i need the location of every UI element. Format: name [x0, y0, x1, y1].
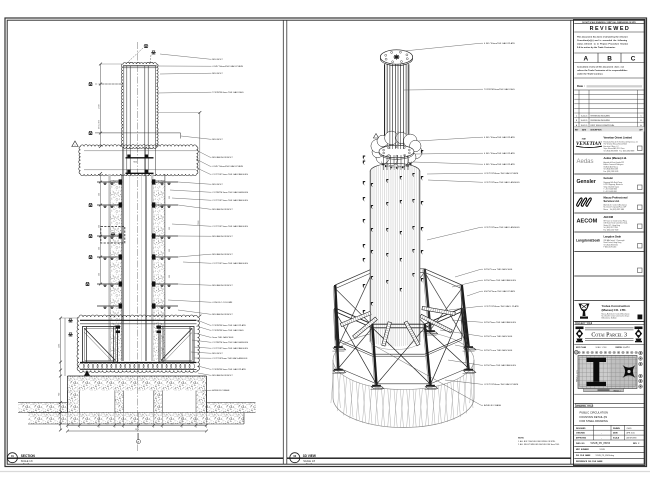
svg-text:Langdon&Seah: Langdon&Seah	[576, 239, 600, 243]
svg-text:AECOM: AECOM	[577, 219, 598, 225]
svg-text:(Macau) CO. LTD.: (Macau) CO. LTD.	[602, 308, 627, 312]
svg-text:C: C	[631, 55, 636, 62]
svg-text:COT/TOP50mm THK GALV.PLATE: COT/TOP50mm THK GALV.PLATE	[484, 172, 519, 175]
svg-text:4 345 *50mmTHK GALV.PLATE: 4 345 *50mmTHK GALV.PLATE	[484, 136, 515, 139]
svg-text:COT/TOP5mm THK GALV. ANGLES: COT/TOP5mm THK GALV. ANGLES	[484, 181, 520, 184]
svg-text:VENETIAN: VENETIAN	[576, 142, 602, 147]
svg-text:4 345 *50mmTHK GALV.PLATE: 4 345 *50mmTHK GALV.PLATE	[484, 152, 515, 155]
svg-text:Gensler: Gensler	[604, 176, 614, 180]
svg-text:4 345 *50mmTHK GALV.PLATE: 4 345 *50mmTHK GALV.PLATE	[212, 165, 243, 168]
svg-text:APPROVED: APPROVED	[576, 437, 587, 440]
svg-text:450: 450	[130, 423, 133, 425]
svg-text:KEY PLAN: KEY PLAN	[576, 346, 587, 349]
svg-text:PROJECT TITLE: PROJECT TITLE	[576, 323, 593, 325]
svg-text:M16 BOLT: M16 BOLT	[212, 59, 223, 61]
svg-text:REVISED AS INDICATED: REVISED AS INDICATED	[591, 119, 611, 122]
svg-text:Date :: Date :	[577, 84, 585, 88]
svg-text:SCALE: SCALE	[613, 437, 620, 440]
svg-text:5152B: 5152B	[600, 449, 606, 451]
svg-text:5152B_PD_85456: 5152B_PD_85456	[591, 442, 611, 445]
svg-text:M16 ANCHOR BOLT: M16 ANCHOR BOLT	[212, 284, 233, 287]
svg-text:M16 ANCHOR BOLT: M16 ANCHOR BOLT	[212, 253, 233, 256]
svg-text:PARCEL 1, LOT 2: PARCEL 1, LOT 2	[616, 346, 630, 349]
svg-text:TOP/BTM 5mm THK GALV.PLATE: TOP/BTM 5mm THK GALV.PLATE	[212, 324, 246, 327]
svg-text:COT/TOP 5mm THK GALV.ANGLES: COT/TOP 5mm THK GALV.ANGLES	[212, 173, 248, 176]
svg-text:5.4 for action by the Trade Co: 5.4 for action by the Trade Contractor.	[577, 46, 616, 49]
svg-text:TOP/BTM 5mm THK GALV.PLATE: TOP/BTM 5mm THK GALV.PLATE	[212, 368, 246, 371]
svg-text:COT/TOP50mm THK GALV.PLATE: COT/TOP50mm THK GALV.PLATE	[484, 383, 519, 386]
svg-text:A2580 R.C.BASE: A2580 R.C.BASE	[212, 389, 230, 392]
svg-text:relieve the Trade Contractor o: relieve the Trade Contractor of its resp…	[577, 69, 628, 72]
svg-text:Consultant review of this docu: Consultant review of this document does …	[577, 66, 624, 69]
svg-text:AECOM: AECOM	[604, 215, 613, 219]
svg-text:Aedas (Macau) Ltd.: Aedas (Macau) Ltd.	[604, 156, 628, 160]
svg-text:50*50*5mm THK GALV.ANGLES: 50*50*5mm THK GALV.ANGLES	[484, 279, 516, 282]
svg-text:15-04-15: 15-04-15	[581, 116, 588, 118]
svg-text:50*50*5 mm THK GALV.SHS: 50*50*5 mm THK GALV.SHS	[484, 349, 513, 352]
svg-text:M16 ANCHOR BOLT: M16 ANCHOR BOLT	[212, 208, 233, 211]
svg-text:DO NOT SCALE DRAWINGS. VERIFY: DO NOT SCALE DRAWINGS. VERIFY ALL DIMENS…	[582, 21, 636, 24]
svg-text:Langdon Seah: Langdon Seah	[604, 235, 622, 239]
svg-text:Tel: (852) 2830 3500: Tel: (852) 2830 3500	[604, 244, 618, 246]
svg-text:COT/BTM 5mm THK GALV.ANGLES: COT/BTM 5mm THK GALV.ANGLES	[212, 191, 248, 194]
svg-text:M16 BOLT: M16 BOLT	[212, 139, 223, 141]
svg-text:Tokyo 106-0032 Japan: Tokyo 106-0032 Japan	[604, 186, 620, 188]
svg-text:DATE: DATE	[613, 432, 619, 435]
svg-text:50*50*5mm THK GALV.ANGLES: 50*50*5mm THK GALV.ANGLES	[484, 321, 516, 324]
svg-text:A: A	[583, 55, 588, 62]
svg-text:1595: 1595	[59, 344, 61, 348]
svg-text:Consultant(s)(s) and is acc: Consultant(s)(s) and is accorded the fol…	[577, 39, 628, 42]
svg-text:Services Ltd.: Services Ltd.	[604, 199, 620, 203]
svg-text:50*50*5mm THK GALV.ANGLES: 50*50*5mm THK GALV.ANGLES	[484, 364, 516, 367]
svg-text:DWG NO: DWG NO	[576, 443, 585, 445]
svg-text:M16 ANCHOR BOLT: M16 ANCHOR BOLT	[212, 156, 233, 159]
svg-text:F + 81 3 6402 6801: F + 81 3 6402 6801	[604, 191, 618, 193]
svg-text:4 350 R.C.COLUMN: 4 350 R.C.COLUMN	[212, 302, 232, 304]
svg-text:M16 BOLT: M16 BOLT	[212, 353, 223, 355]
svg-text:600: 600	[72, 423, 75, 425]
svg-text:Tel: (853) 2882 8888 Fax: (: Tel: (853) 2882 8888 Fax: (853) 2882 888…	[604, 150, 635, 152]
svg-text:5152B_PD_85456.dwg: 5152B_PD_85456.dwg	[596, 455, 614, 457]
svg-text:A2580 R.C.BASE: A2580 R.C.BASE	[484, 404, 502, 407]
svg-text:500: 500	[99, 193, 101, 196]
svg-text:50*50*5 mm THK GALV.SHS: 50*50*5 mm THK GALV.SHS	[484, 268, 513, 271]
svg-text:500: 500	[169, 249, 171, 252]
svg-text:APR 2015: APR 2015	[627, 432, 635, 435]
svg-text:2950: 2950	[135, 429, 139, 431]
svg-text:4 345 *50mmTHK GALV.PLATE: 4 345 *50mmTHK GALV.PLATE	[212, 65, 243, 68]
svg-text:B: B	[607, 55, 612, 62]
svg-text:Macau Tel: (853) 2875 3088: Macau Tel: (853) 2875 3088	[604, 209, 625, 211]
svg-text:4 345 *50mmTHK GALV.PLATE: 4 345 *50mmTHK GALV.PLATE	[484, 163, 515, 166]
svg-text:Aedas: Aedas	[577, 159, 594, 165]
svg-text:COT/TOP 5mm THK GALV.ANGLES: COT/TOP 5mm THK GALV.ANGLES	[212, 199, 248, 202]
svg-text:600: 600	[188, 423, 191, 425]
svg-text:450: 450	[157, 423, 160, 425]
svg-text:500: 500	[99, 247, 101, 250]
svg-text:760: 760	[59, 393, 61, 396]
svg-text:AS SHOWN: AS SHOWN	[627, 437, 637, 440]
svg-text:COT/TOP5mm THK GALV. ANGLES: COT/TOP5mm THK GALV. ANGLES	[484, 226, 520, 229]
svg-text:TOP/BTM 5mm THK GALV.SHS: TOP/BTM 5mm THK GALV.SHS	[212, 329, 244, 332]
svg-text:500: 500	[169, 275, 171, 278]
svg-text:DRAWN: DRAWN	[613, 427, 620, 430]
svg-text:Venetian Orient Limited: Venetian Orient Limited	[604, 136, 633, 140]
svg-text:Cotai Parcel 3: Cotai Parcel 3	[591, 333, 627, 339]
svg-text:DESIGNED: DESIGNED	[576, 428, 586, 430]
svg-text:4 345 *50mmTHK GALV.PLATE: 4 345 *50mmTHK GALV.PLATE	[484, 42, 515, 45]
svg-text:2. ALL FILLET WELDED SHOULD BE: 2. ALL FILLET WELDED SHOULD BE 3mm THK.	[518, 443, 560, 446]
svg-text:COT/TOP5mm THK GALV.ANGLES: COT/TOP5mm THK GALV.ANGLES	[212, 357, 248, 360]
svg-text:status referred to in Proj: status referred to in Project Procedure …	[577, 43, 629, 46]
svg-text:450*50*5mm THK GALV.PLATE: 450*50*5mm THK GALV.PLATE	[484, 290, 516, 293]
svg-text:NOTE:: NOTE:	[518, 438, 525, 440]
svg-text:864: 864	[171, 423, 174, 425]
svg-text:COT/TOP50mm THK GALV. PLATE: COT/TOP50mm THK GALV. PLATE	[484, 305, 519, 308]
svg-text:REVISED AS INDICATED: REVISED AS INDICATED	[591, 115, 611, 118]
svg-text:CHKD: CHKD	[627, 428, 633, 430]
svg-text:M16 BOLT: M16 BOLT	[212, 184, 223, 186]
svg-text:Fax: (853) 2833 1028: Fax: (853) 2833 1028	[604, 171, 619, 173]
svg-text:50*50*5 mm THK GALV.SHS: 50*50*5 mm THK GALV.SHS	[484, 335, 513, 338]
svg-text:DESCRIPTION: DESCRIPTION	[591, 130, 603, 132]
svg-text:M24: M24	[134, 162, 138, 164]
svg-text:COT/BTM 5mm THK GALV.ANGLES: COT/BTM 5mm THK GALV.ANGLES	[212, 341, 248, 344]
svg-text:COT/TOP 5mm THK GALV.ANGLES: COT/TOP 5mm THK GALV.ANGLES	[212, 225, 248, 228]
svg-text:CHECKED: CHECKED	[576, 433, 586, 435]
svg-text:TOP/BTM 6mmTHK GALV.SHS: TOP/BTM 6mmTHK GALV.SHS	[484, 88, 515, 91]
svg-text:600: 600	[200, 423, 203, 425]
svg-text:M16 ANCHOR BOLT: M16 ANCHOR BOLT	[212, 235, 233, 238]
svg-text:FOR STEEL DRAWING: FOR STEEL DRAWING	[580, 419, 608, 423]
svg-text:500: 500	[99, 273, 101, 276]
svg-text:FOUNTAIN DETAIL (IN: FOUNTAIN DETAIL (IN	[580, 415, 608, 419]
svg-text:Fax: (852) 2317 7009: Fax: (852) 2317 7009	[604, 229, 619, 231]
svg-text:M16 BOLT: M16 BOLT	[212, 73, 223, 75]
svg-text:FIRST ISSUE FOR APPROVAL: FIRST ISSUE FOR APPROVAL	[591, 124, 615, 127]
svg-text:600: 600	[106, 423, 109, 425]
svg-text:T + 81 3 6402 6800: T + 81 3 6402 6800	[604, 189, 618, 191]
svg-text:1. ALL BOLT SHOULD BE FIXING O: 1. ALL BOLT SHOULD BE FIXING ON SITE.	[518, 440, 556, 443]
svg-text:450: 450	[145, 423, 148, 425]
svg-text:Gensler: Gensler	[577, 179, 596, 185]
svg-text:500: 500	[169, 227, 171, 230]
svg-text:MDF NUMBER: MDF NUMBER	[576, 449, 589, 451]
svg-text:SCALE 1:8: SCALE 1:8	[303, 460, 315, 463]
svg-text:864: 864	[88, 423, 91, 425]
svg-text:This document has been reviewe: This document has been reviewed by the r…	[577, 36, 628, 39]
svg-text:R E V I E W E D: R E V I E W E D	[590, 26, 629, 32]
svg-text:PUBLIC CIRCULATION: PUBLIC CIRCULATION	[580, 411, 609, 415]
svg-text:REV C: REV C	[633, 443, 640, 445]
svg-text:COT/TOP 5mm THK GALV.ANGLES: COT/TOP 5mm THK GALV.ANGLES	[212, 262, 248, 265]
svg-text:450: 450	[118, 423, 121, 425]
svg-text:500: 500	[169, 196, 171, 199]
svg-text:500: 500	[99, 225, 101, 228]
svg-text:Tel: (853) 2833 1088: Tel: (853) 2833 1088	[604, 169, 618, 171]
svg-text:DIG FILE NAME: DIG FILE NAME	[576, 454, 591, 457]
svg-text:under the Trade Contract.: under the Trade Contract.	[577, 73, 603, 76]
svg-text:REFERENCE DIG FILE NAME: REFERENCE DIG FILE NAME	[576, 460, 603, 463]
svg-text:Tel: (852) 2317 7000: Tel: (852) 2317 7000	[604, 227, 618, 229]
svg-text:THE: THE	[582, 139, 587, 141]
svg-text:M16 ANCHOR BOLT: M16 ANCHOR BOLT	[212, 374, 233, 377]
svg-text:10-03-15: 10-03-15	[581, 120, 588, 122]
svg-text:5mm THK GALV.SHS: 5mm THK GALV.SHS	[212, 336, 234, 339]
svg-text:COT/TOP 5mm THK GALV.ANGLES: COT/TOP 5mm THK GALV.ANGLES	[212, 347, 248, 350]
svg-text:TOP/BTM 6mm THK GALV.SHS: TOP/BTM 6mm THK GALV.SHS	[212, 91, 244, 94]
svg-text:M16 ANCHOR BOLT: M16 ANCHOR BOLT	[212, 313, 233, 316]
svg-text:F (852) 2576 0416: F (852) 2576 0416	[604, 247, 617, 249]
svg-text:SCALE 1:8: SCALE 1:8	[21, 460, 33, 463]
svg-text:18-02-15: 18-02-15	[581, 125, 588, 127]
